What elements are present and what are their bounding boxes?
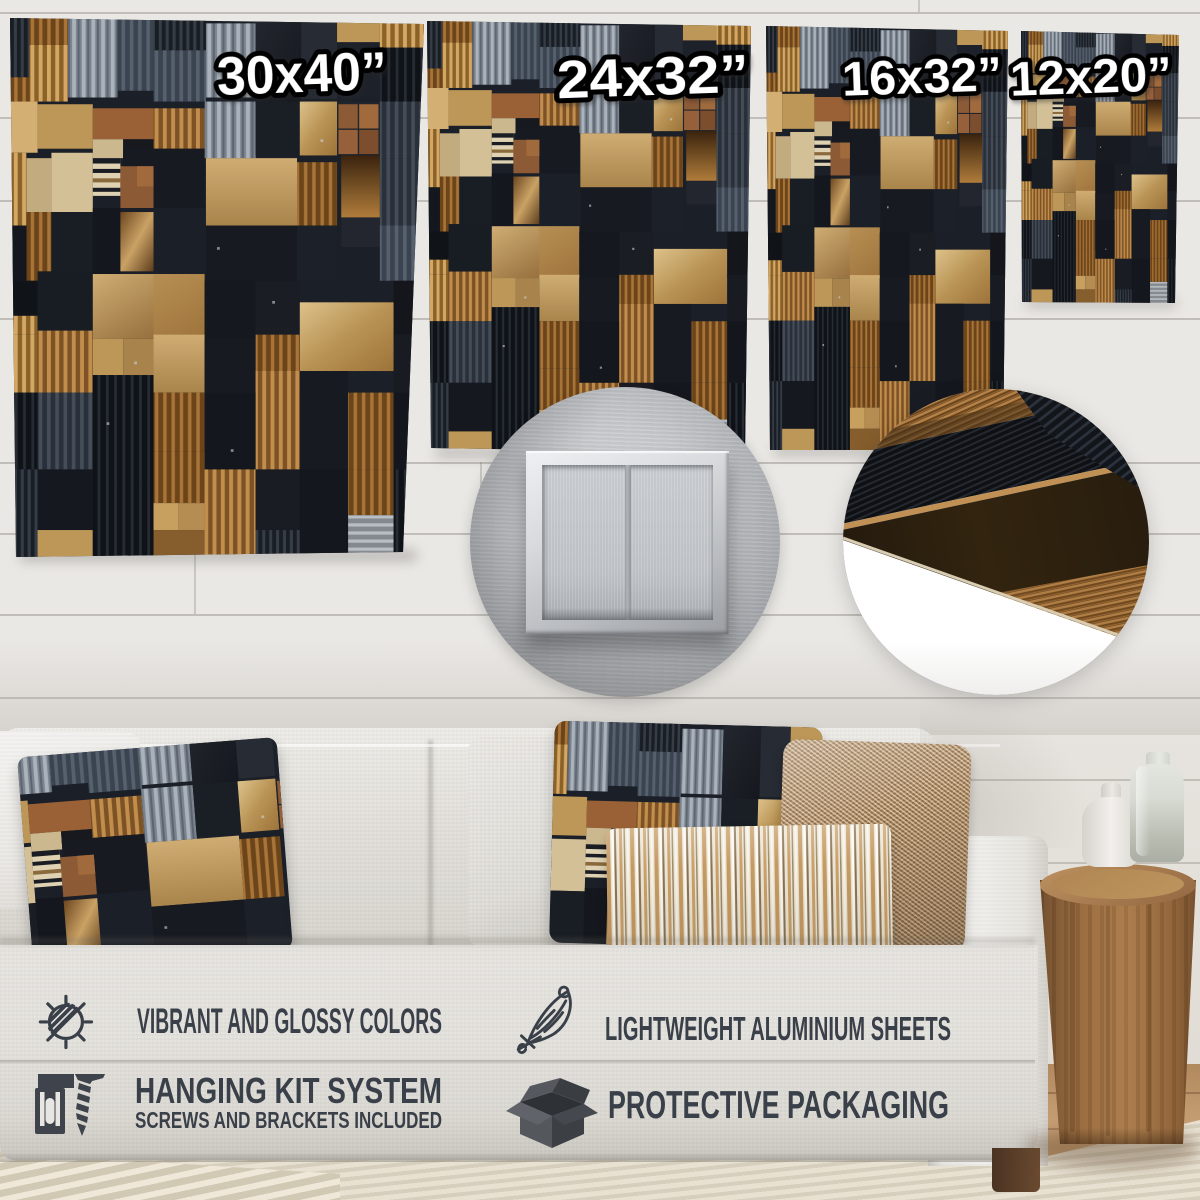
- svg-text:30x40”: 30x40”: [216, 41, 388, 107]
- svg-text:LIGHTWEIGHT ALUMINIUM SHEETS: LIGHTWEIGHT ALUMINIUM SHEETS: [605, 1010, 951, 1047]
- svg-text:SCREWS AND BRACKETS INCLUDED: SCREWS AND BRACKETS INCLUDED: [135, 1107, 442, 1133]
- svg-text:PROTECTIVE PACKAGING: PROTECTIVE PACKAGING: [608, 1084, 949, 1127]
- svg-text:24x32”: 24x32”: [556, 44, 750, 111]
- svg-text:12x20”: 12x20”: [1009, 48, 1173, 107]
- svg-text:16x32”: 16x32”: [841, 48, 1003, 107]
- svg-text:VIBRANT AND GLOSSY COLORS: VIBRANT AND GLOSSY COLORS: [137, 1002, 442, 1041]
